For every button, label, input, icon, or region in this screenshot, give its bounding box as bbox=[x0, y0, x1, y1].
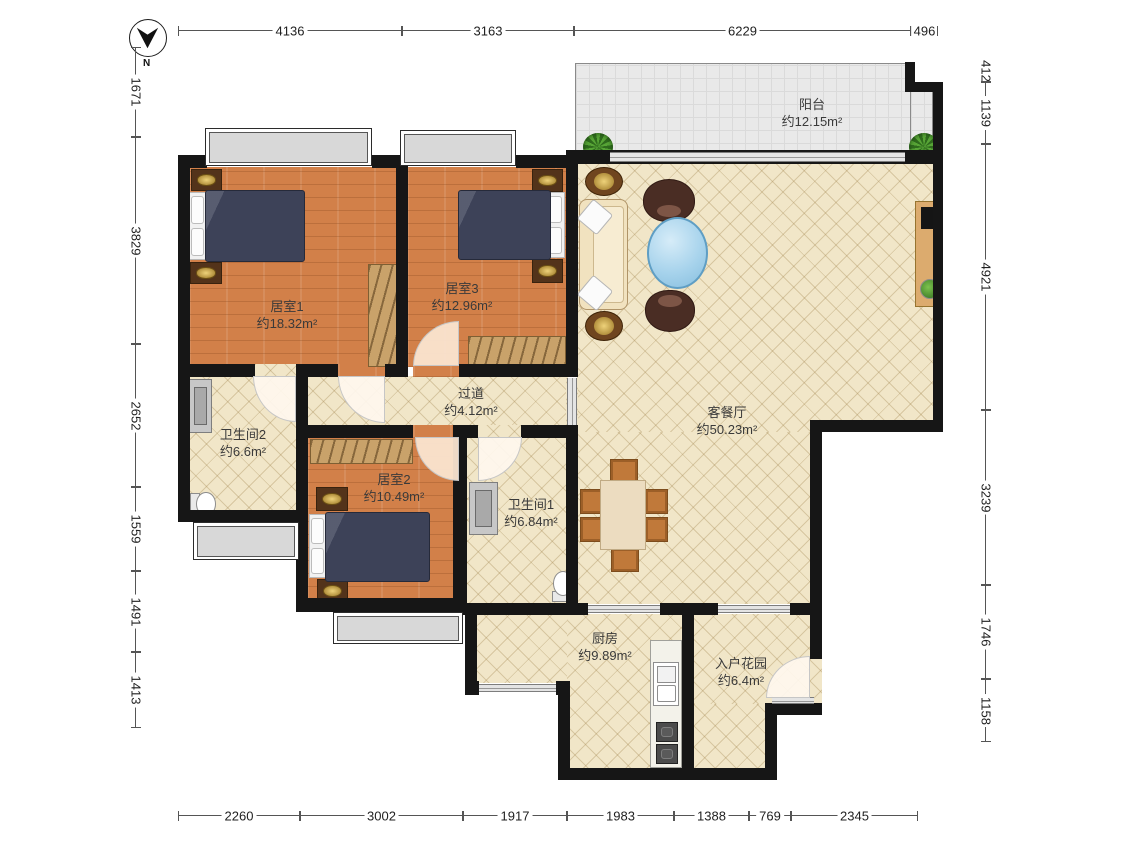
window bbox=[479, 684, 556, 692]
pillow-icon bbox=[191, 228, 204, 256]
room-name: 居室3 bbox=[432, 280, 493, 297]
room-label-bedroom3: 居室3 约12.96m² bbox=[432, 280, 493, 314]
bed-icon bbox=[325, 512, 430, 582]
bed-icon bbox=[205, 190, 305, 262]
dimension-left: 1491 bbox=[135, 571, 136, 652]
wall bbox=[558, 683, 570, 780]
dimension-bottom: 3002 bbox=[300, 815, 463, 816]
dimension-value: 1983 bbox=[603, 809, 638, 824]
dimension-top: 4136 bbox=[178, 30, 402, 31]
bed-icon bbox=[458, 190, 551, 260]
room-area: 约12.15m² bbox=[782, 113, 843, 130]
dimension-value: 4921 bbox=[979, 260, 994, 295]
dimension-value: 3239 bbox=[979, 480, 994, 515]
wardrobe-icon bbox=[468, 336, 566, 366]
room-label-bedroom2: 居室2 约10.49m² bbox=[364, 471, 425, 505]
wall bbox=[933, 82, 943, 432]
balcony-sliding-door bbox=[610, 152, 905, 162]
dimension-bottom: 1388 bbox=[674, 815, 749, 816]
compass-north-label: N bbox=[143, 58, 150, 69]
dining-chair-icon bbox=[611, 548, 639, 572]
dimension-bottom: 1983 bbox=[567, 815, 674, 816]
stove-burner-icon bbox=[656, 722, 678, 742]
wall bbox=[686, 768, 777, 780]
room-area: 约50.23m² bbox=[697, 421, 758, 438]
hallway-living-opening bbox=[567, 378, 577, 425]
room-label-kitchen: 厨房 约9.89m² bbox=[578, 630, 631, 664]
room-area: 约4.12m² bbox=[444, 402, 497, 419]
dimension-right: 3239 bbox=[985, 410, 986, 585]
dining-table-icon bbox=[600, 480, 646, 550]
room-label-living: 客餐厅 约50.23m² bbox=[697, 404, 758, 438]
room-area: 约10.49m² bbox=[364, 488, 425, 505]
nightstand-icon bbox=[532, 169, 563, 192]
wall bbox=[178, 155, 190, 522]
room-name: 卫生间2 bbox=[220, 426, 266, 443]
dimension-top: 6229 bbox=[574, 30, 911, 31]
wall bbox=[465, 603, 477, 683]
room-name: 客餐厅 bbox=[697, 404, 758, 421]
wall bbox=[682, 603, 694, 780]
side-table-icon bbox=[585, 311, 623, 341]
nightstand-icon bbox=[532, 259, 563, 283]
wall bbox=[296, 425, 413, 438]
entry-door-sill bbox=[772, 697, 814, 704]
dimension-left: 1671 bbox=[135, 47, 136, 137]
dimension-left: 1413 bbox=[135, 652, 136, 728]
dimension-value: 1413 bbox=[129, 673, 144, 708]
wardrobe-icon bbox=[368, 264, 398, 367]
dimension-right: 1139 bbox=[985, 82, 986, 144]
dimension-value: 1491 bbox=[129, 594, 144, 629]
room-name: 居室1 bbox=[257, 298, 318, 315]
dimension-bottom: 769 bbox=[749, 815, 791, 816]
bay-window bbox=[205, 128, 372, 166]
pillow-icon bbox=[191, 196, 204, 224]
armchair-icon bbox=[645, 290, 695, 332]
room-label-bedroom1: 居室1 约18.32m² bbox=[257, 298, 318, 332]
dimension-value: 1559 bbox=[129, 512, 144, 547]
wall bbox=[459, 364, 578, 377]
room-area: 约6.6m² bbox=[220, 443, 266, 460]
dimension-value: 1388 bbox=[694, 809, 729, 824]
room-area: 约6.84m² bbox=[504, 513, 557, 530]
dimension-right: 1158 bbox=[985, 679, 986, 742]
room-label-bathroom2: 卫生间2 约6.6m² bbox=[220, 426, 266, 460]
coffee-table-icon bbox=[647, 217, 708, 289]
dimension-bottom: 1917 bbox=[463, 815, 567, 816]
wall bbox=[296, 364, 308, 612]
room-label-hallway: 过道 约4.12m² bbox=[444, 385, 497, 419]
room-area: 约6.4m² bbox=[715, 672, 767, 689]
wall bbox=[385, 364, 408, 377]
kitchen-floor-left bbox=[467, 614, 568, 683]
wall bbox=[465, 681, 479, 695]
dimension-right: 412 bbox=[985, 60, 986, 82]
nightstand-icon bbox=[316, 487, 348, 511]
dimension-value: 412 bbox=[979, 57, 994, 85]
dimension-value: 496 bbox=[911, 24, 939, 39]
dining-chair-icon bbox=[645, 489, 668, 514]
wardrobe-icon bbox=[310, 439, 413, 464]
dimension-value: 1917 bbox=[498, 809, 533, 824]
pillow-icon bbox=[311, 548, 324, 574]
dimension-right: 4921 bbox=[985, 144, 986, 410]
living-floor-upper bbox=[577, 164, 934, 432]
wall bbox=[810, 420, 943, 432]
wall bbox=[566, 150, 578, 376]
room-name: 过道 bbox=[444, 385, 497, 402]
shower-icon bbox=[469, 482, 498, 535]
wall bbox=[810, 420, 822, 659]
dimension-top: 496 bbox=[911, 30, 938, 31]
room-label-garden: 入户花园 约6.4m² bbox=[715, 655, 767, 689]
dimension-value: 1139 bbox=[979, 96, 994, 130]
dimension-value: 769 bbox=[756, 809, 784, 824]
bay-window bbox=[193, 522, 299, 560]
dimension-left: 3829 bbox=[135, 137, 136, 344]
dimension-value: 2260 bbox=[222, 809, 257, 824]
side-table-icon bbox=[585, 167, 623, 196]
dimension-value: 6229 bbox=[725, 24, 760, 39]
dimension-value: 3163 bbox=[471, 24, 506, 39]
wall bbox=[558, 768, 694, 780]
dimension-value: 1746 bbox=[979, 615, 994, 650]
room-label-balcony: 阳台 约12.15m² bbox=[782, 96, 843, 130]
dining-chair-icon bbox=[645, 517, 668, 542]
room-area: 约12.96m² bbox=[432, 297, 493, 314]
room-name: 厨房 bbox=[578, 630, 631, 647]
room-area: 约9.89m² bbox=[578, 647, 631, 664]
floor-plan: 阳台 约12.15m² 居室1 约18.32m² 居室3 约12.96m² 过道… bbox=[0, 0, 1125, 844]
window bbox=[588, 605, 660, 613]
dimension-top: 3163 bbox=[402, 30, 574, 31]
dimension-value: 4136 bbox=[273, 24, 308, 39]
dimension-value: 2652 bbox=[129, 398, 144, 433]
dimension-right: 1746 bbox=[985, 585, 986, 679]
room-name: 卫生间1 bbox=[504, 496, 557, 513]
dimension-value: 1158 bbox=[979, 694, 994, 728]
kitchen-sink-icon bbox=[653, 662, 679, 706]
room-name: 阳台 bbox=[782, 96, 843, 113]
nightstand-icon bbox=[190, 262, 222, 284]
balcony-floor bbox=[575, 63, 911, 158]
wall bbox=[178, 364, 255, 377]
wall bbox=[178, 510, 307, 522]
room-area: 约18.32m² bbox=[257, 315, 318, 332]
dimension-left: 2652 bbox=[135, 344, 136, 487]
dimension-value: 2345 bbox=[837, 809, 872, 824]
wall bbox=[296, 598, 462, 612]
room-label-bathroom1: 卫生间1 约6.84m² bbox=[504, 496, 557, 530]
shower-icon bbox=[189, 379, 212, 433]
dimension-value: 1671 bbox=[129, 75, 144, 110]
stove-burner-icon bbox=[656, 744, 678, 764]
wall bbox=[566, 425, 578, 615]
dimension-bottom: 2260 bbox=[178, 815, 300, 816]
window bbox=[718, 605, 790, 613]
garden-floor-lower bbox=[694, 704, 766, 769]
room-name: 入户花园 bbox=[715, 655, 767, 672]
room-name: 居室2 bbox=[364, 471, 425, 488]
dimension-value: 3829 bbox=[129, 223, 144, 258]
dimension-bottom: 2345 bbox=[791, 815, 918, 816]
nightstand-icon bbox=[191, 169, 222, 191]
armchair-icon bbox=[643, 179, 695, 222]
dimension-left: 1559 bbox=[135, 487, 136, 571]
wall bbox=[396, 155, 408, 376]
bay-window bbox=[333, 612, 463, 644]
pillow-icon bbox=[311, 518, 324, 544]
bay-window bbox=[400, 130, 516, 166]
dimension-value: 3002 bbox=[364, 809, 399, 824]
